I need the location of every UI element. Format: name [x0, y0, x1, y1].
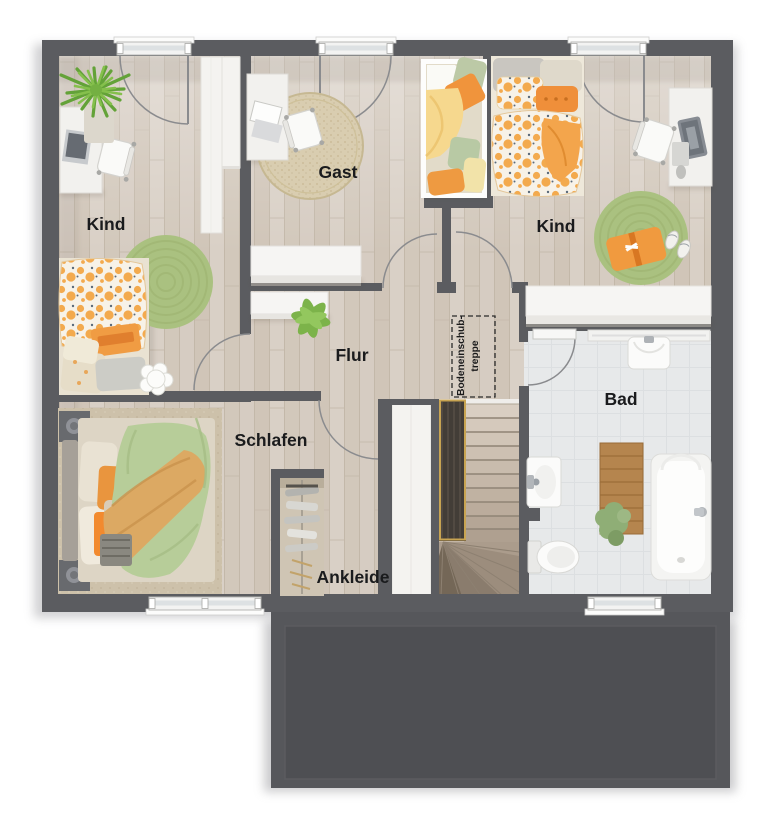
svg-text:Kind: Kind — [87, 214, 126, 234]
svg-text:Bodeneinschub-: Bodeneinschub- — [456, 316, 467, 396]
svg-text:Bad: Bad — [604, 389, 637, 409]
svg-text:treppe: treppe — [470, 340, 481, 371]
svg-text:Kind: Kind — [537, 216, 576, 236]
svg-text:Gast: Gast — [319, 162, 358, 182]
svg-text:Flur: Flur — [335, 345, 368, 365]
svg-text:Schlafen: Schlafen — [235, 430, 308, 450]
svg-text:Ankleide: Ankleide — [317, 567, 390, 587]
